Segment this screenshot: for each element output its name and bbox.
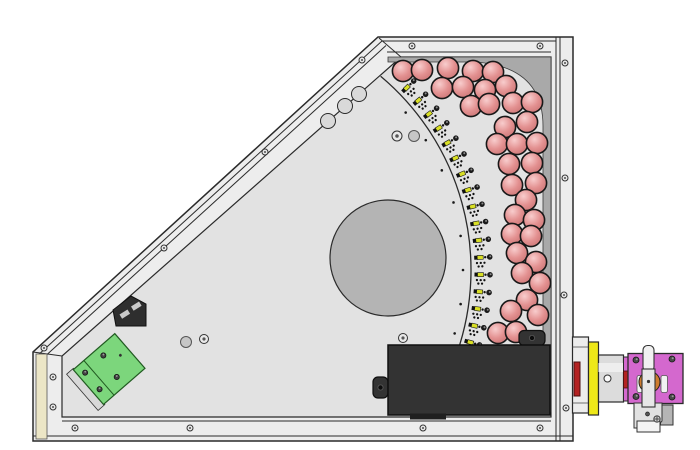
wall-screw	[562, 60, 568, 66]
red-sliver	[624, 371, 629, 388]
wall-screw	[50, 374, 56, 380]
pink-sphere	[500, 300, 521, 321]
coupler-highlight	[599, 363, 624, 372]
plate-dot	[441, 169, 444, 172]
plate-dot	[452, 201, 455, 204]
module-tab-hole	[529, 335, 534, 340]
wall-screw	[420, 425, 426, 431]
wall-screw	[409, 43, 415, 49]
bracket-screw-small	[646, 412, 650, 416]
pink-sphere	[392, 60, 413, 81]
wall-screw	[563, 405, 569, 411]
wall-screw	[161, 245, 167, 251]
central-disc	[330, 200, 446, 316]
wall-screw	[359, 57, 365, 63]
wall-screw	[262, 149, 268, 155]
module-body	[388, 345, 550, 415]
pink-sphere	[526, 132, 547, 153]
pink-sphere	[502, 92, 523, 113]
pink-sphere	[437, 57, 458, 78]
plate-screw	[392, 131, 402, 141]
adjuster-yellow-body	[473, 221, 480, 226]
pink-sphere	[506, 133, 527, 154]
wall-screw	[537, 43, 543, 49]
wall-screw	[72, 425, 78, 431]
pink-sphere	[478, 93, 499, 114]
clamp-cylinder	[643, 346, 654, 372]
red-aperture	[574, 362, 580, 396]
cad-canvas	[0, 0, 700, 450]
pink-sphere	[498, 153, 519, 174]
clamp-bar	[642, 369, 655, 407]
plate-dot	[424, 139, 427, 142]
block-slot-right	[661, 376, 668, 393]
plate-stud	[181, 337, 192, 348]
pink-sphere	[504, 204, 525, 225]
plate-dot	[404, 111, 407, 114]
pink-sphere	[486, 133, 507, 154]
plate-dot	[459, 235, 462, 238]
adjuster-yellow-body	[476, 289, 482, 293]
plate-dot	[462, 269, 465, 272]
adjuster-yellow-body	[477, 255, 483, 259]
adjuster-end-block	[474, 256, 477, 260]
bracket-foot	[637, 421, 660, 432]
pink-sphere	[527, 304, 548, 325]
wall-screw	[537, 425, 543, 431]
scallop-notch	[352, 87, 367, 102]
adjuster-yellow-body	[476, 238, 482, 243]
module-under-strip	[410, 414, 446, 420]
pink-sphere	[521, 152, 542, 173]
block-corner-screw	[669, 356, 675, 362]
pink-sphere	[501, 223, 522, 244]
pink-sphere	[520, 225, 541, 246]
block-corner-screw	[633, 357, 639, 363]
adjuster-yellow-body	[474, 306, 481, 311]
wall-screw	[561, 292, 567, 298]
block-corner-screw	[669, 394, 675, 400]
clamp-bar-hole	[647, 380, 650, 383]
adjuster-end-block	[474, 273, 477, 277]
wall-screw	[41, 345, 47, 351]
plate-screw	[200, 335, 209, 344]
adjuster-yellow-body	[477, 273, 483, 277]
module-tab-hole	[378, 385, 383, 390]
plate-dot	[459, 303, 462, 306]
wall-screw	[50, 404, 56, 410]
left-wall-end-strip	[36, 354, 47, 439]
plate-stud	[409, 131, 420, 142]
output-port-assembly	[573, 337, 684, 432]
pink-sphere	[452, 76, 473, 97]
assembly-drawing	[0, 0, 700, 450]
adjuster-yellow-body	[471, 323, 478, 328]
pink-sphere	[521, 91, 542, 112]
pink-sphere	[411, 59, 432, 80]
pink-sphere	[431, 77, 452, 98]
wall-screw	[562, 175, 568, 181]
scallop-notch	[321, 114, 336, 129]
coupler-hole	[604, 375, 611, 382]
plate-dot	[453, 332, 456, 335]
pink-sphere	[506, 242, 527, 263]
wall-screw	[187, 425, 193, 431]
pink-sphere	[516, 111, 537, 132]
plate-screw	[399, 334, 408, 343]
yellow-plate	[589, 342, 599, 415]
scallop-notch	[338, 99, 353, 114]
block-corner-screw	[633, 394, 639, 400]
